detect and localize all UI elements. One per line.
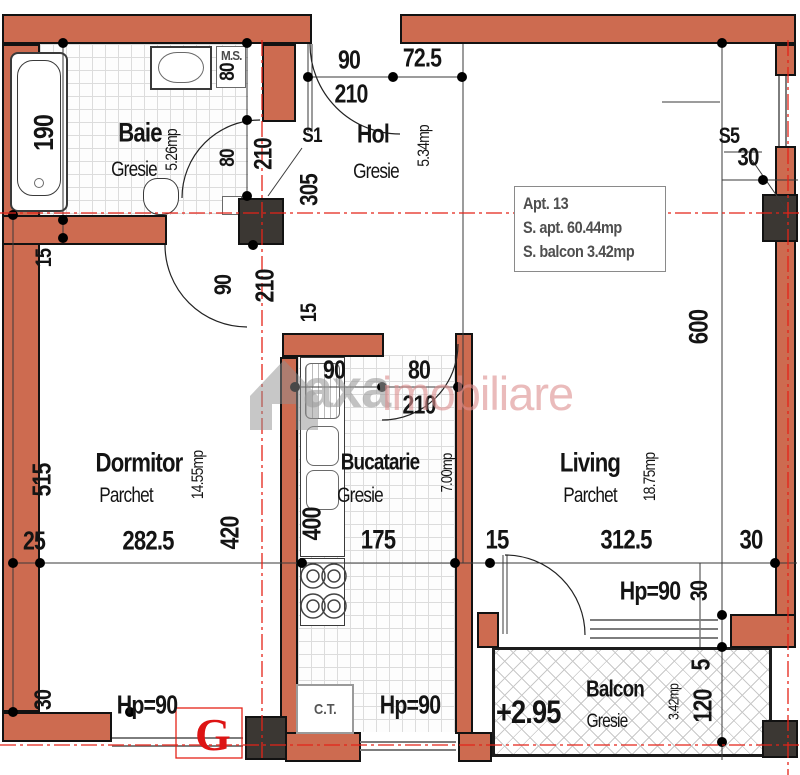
watermark-brand-suffix: imobiliare [382,366,573,421]
dim-label: 15 [31,249,57,267]
dim-label: 72.5 [403,43,441,74]
dim-label: 515 [27,463,58,496]
room-area-living: 18.75mp [640,453,660,502]
room-floor-living: Parchet [563,484,617,508]
dim-label: 190 [28,115,60,151]
room-area-bucatarie: 7.00mp [439,454,457,493]
dim-label: 80 [216,149,240,167]
parapet-label: Hp=90 [117,690,177,721]
parapet-label: Hp=90 [620,576,680,607]
apartment-info-box: Apt. 13 S. apt. 60.44mp S. balcon 3.42mp [514,186,666,272]
dim-label: 282.5 [122,526,173,557]
dim-label: 210 [334,79,367,110]
room-floor-baie: Gresie [111,158,157,182]
room-floor-dormitor: Parchet [99,484,153,508]
dim-label: 90 [210,275,238,295]
room-name-hol: Hol [357,119,389,150]
dim-label: 80 [216,63,240,81]
apartment-number: Apt. 13 [523,192,637,216]
dim-label: 15 [486,525,509,556]
axis-label: S5 [719,123,739,149]
room-name-living: Living [560,448,620,479]
section-marker-g: G [195,708,231,761]
dim-label: 90 [338,45,360,76]
floor-plan: C.T. Apt. 13 S. apt. 60.44mp S. balcon 3… [0,0,800,775]
dim-label: 210 [250,269,281,302]
dim-label: 305 [296,174,325,206]
apartment-area: S. apt. 60.44mp [523,216,637,240]
room-area-hol: 5.34mp [414,125,434,167]
room-area-dormitor: 14.55mp [188,451,208,500]
washing-machine-label: M.S. [221,48,241,63]
watermark-brand: axa [303,358,390,420]
room-name-baie: Baie [118,118,161,149]
room-name-bucatarie: Bucatarie [341,449,420,476]
balcon-level: +2.95 [496,694,561,731]
dim-label: 175 [361,525,395,556]
dim-label: 420 [215,516,246,549]
room-area-balcon: 3.42mp [666,684,683,720]
dim-label: 400 [297,507,328,540]
room-floor-balcon: Gresie [587,711,628,733]
dim-label: 25 [23,526,45,557]
dim-label: 312.5 [600,525,651,556]
dim-label: 210 [250,138,279,170]
room-floor-bucatarie: Gresie [337,484,383,508]
dim-label: 30 [30,690,58,710]
dim-label: 5 [686,659,717,670]
parapet-label: Hp=90 [380,690,440,721]
axis-label: S1 [302,124,321,148]
room-name-balcon: Balcon [586,676,644,703]
dim-label: 30 [737,144,758,173]
dim-label: 120 [688,689,719,722]
room-name-dormitor: Dormitor [96,448,183,479]
room-area-baie: 5.26mp [162,129,182,171]
balcony-area: S. balcon 3.42mp [523,240,637,264]
dim-label: 30 [740,525,763,556]
dim-label: 15 [296,304,322,322]
room-floor-hol: Gresie [353,160,399,184]
dim-label: 600 [684,310,715,344]
dim-label: 30 [686,581,714,601]
